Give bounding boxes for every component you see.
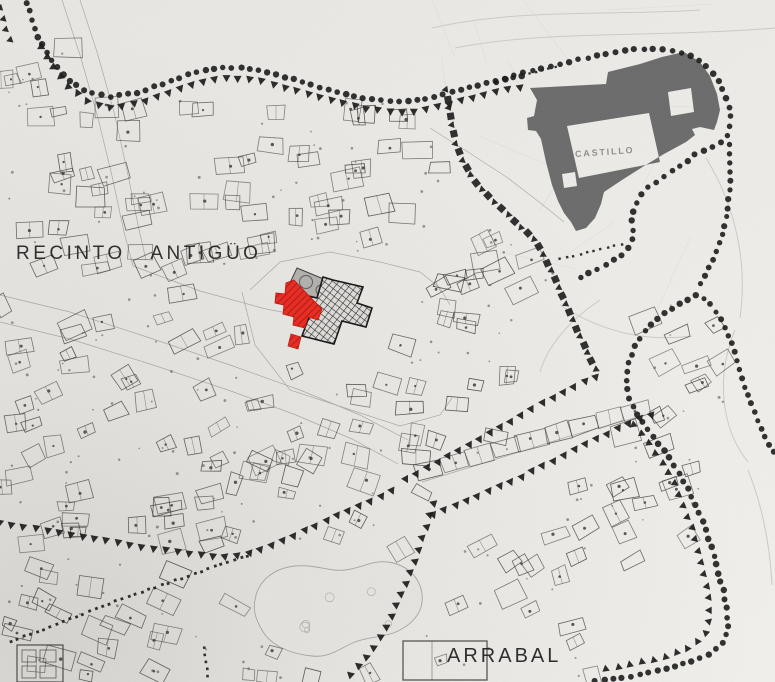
label-recinto-antiguo: RECINTO ANTIGÜO — [16, 243, 261, 265]
city-plan-canvas — [0, 0, 775, 682]
label-arrabal: ARRABAL — [447, 645, 561, 668]
scan-grain-overlay — [0, 0, 775, 682]
map-root: RECINTO ANTIGÜO CASTILLO ARRABAL — [0, 0, 775, 682]
